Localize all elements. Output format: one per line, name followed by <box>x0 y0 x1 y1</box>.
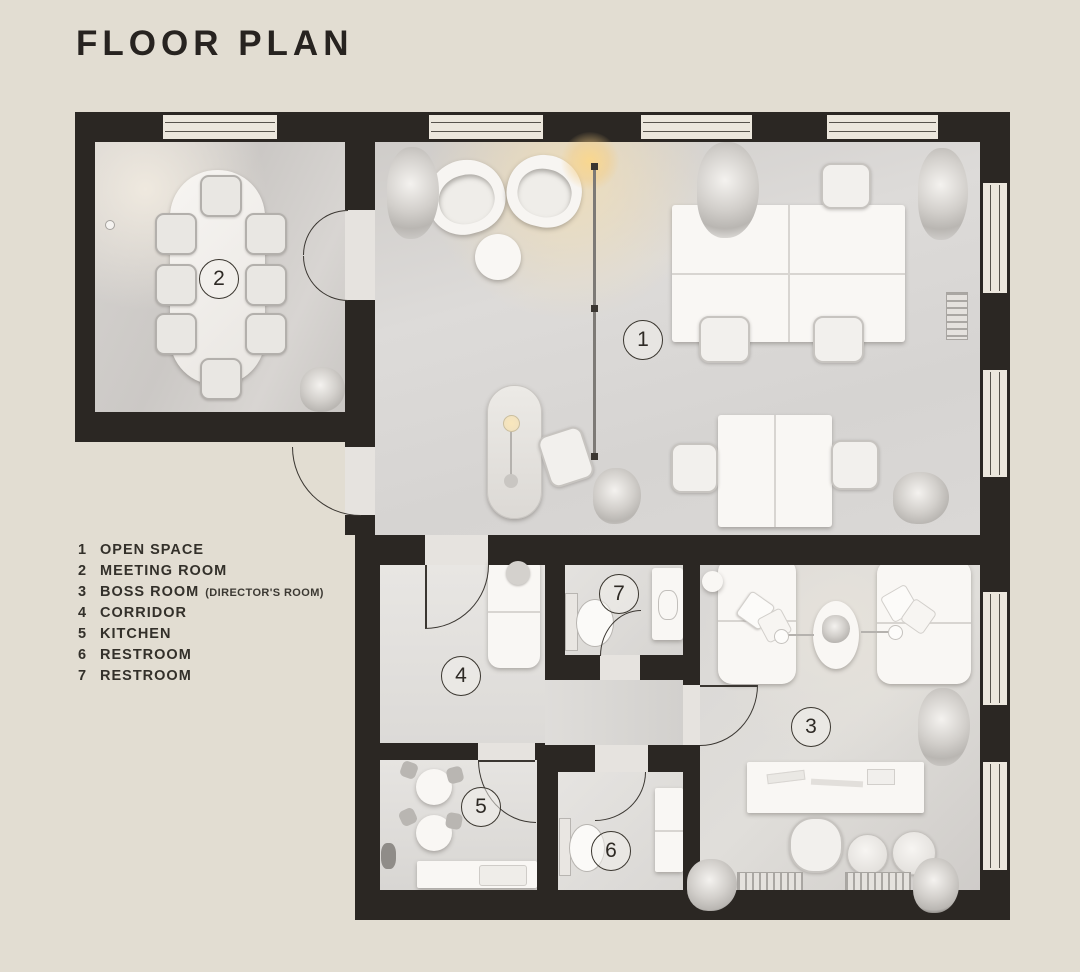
meeting-chair <box>245 213 287 255</box>
room-badge-corridor: 4 <box>441 656 481 696</box>
office-chair <box>699 316 750 363</box>
wall-meeting-bottom <box>75 412 347 442</box>
sofa-pillow <box>506 561 530 585</box>
wall-kitchen-top-left <box>355 743 478 760</box>
room-badge-meeting-room: 2 <box>199 259 239 299</box>
meeting-chair <box>155 313 197 355</box>
wall-boss-divider-upper <box>683 535 700 685</box>
side-table <box>702 571 723 592</box>
doorway <box>478 743 535 760</box>
glass-partition <box>593 165 596 460</box>
floor-plan: 1 2 3 4 5 6 7 <box>75 112 1010 920</box>
desk-laptop <box>867 769 895 785</box>
desk-papers <box>767 770 806 785</box>
kitchen-door-leaf <box>478 760 535 762</box>
meeting-chair <box>200 358 242 400</box>
page-title: FLOOR PLAN <box>76 24 353 64</box>
office-chair <box>813 316 864 363</box>
wall-bottom <box>355 890 1010 920</box>
kitchen-counter <box>417 861 537 888</box>
meeting-chair <box>155 213 197 255</box>
desk-chair <box>789 817 843 873</box>
room-badge-boss-room: 3 <box>791 707 831 747</box>
desk-bank-bottom <box>718 415 832 527</box>
desk-divider <box>774 415 776 527</box>
doorway <box>345 210 375 300</box>
floor-lamp <box>774 629 789 644</box>
partition-node <box>591 453 598 460</box>
desk-keyboard <box>811 779 863 788</box>
partition-node <box>591 305 598 312</box>
desk-lamp <box>503 415 520 432</box>
coat-stand <box>381 843 396 869</box>
radiator <box>946 292 968 340</box>
meeting-chair <box>245 264 287 306</box>
office-chair <box>671 443 718 493</box>
room-number: 6 <box>605 839 617 863</box>
doorway <box>425 535 488 565</box>
corridor-door-leaf <box>425 565 427 628</box>
floor-lamp <box>888 625 903 640</box>
wall-meeting-left <box>75 112 95 442</box>
cabinet-seam <box>655 830 683 832</box>
room-number: 5 <box>475 795 487 819</box>
meeting-chair <box>155 264 197 306</box>
room-number: 2 <box>213 267 225 291</box>
room-number: 7 <box>613 582 625 606</box>
reception-desk <box>487 385 542 519</box>
meeting-chair <box>200 175 242 217</box>
boss-desk <box>747 762 924 813</box>
room-badge-restroom-7: 7 <box>599 574 639 614</box>
office-chair <box>821 163 871 209</box>
office-chair <box>831 440 879 490</box>
doorway <box>600 655 640 680</box>
desk-divider <box>672 273 905 275</box>
wall-passage-bottom-left <box>537 745 595 772</box>
corridor-passage-floor <box>545 680 685 745</box>
kitchen-chair <box>445 812 464 831</box>
window <box>983 370 1007 477</box>
wall-segment <box>345 300 375 447</box>
lounge-chair-seat <box>433 168 500 230</box>
window <box>983 762 1007 870</box>
round-stool <box>847 834 888 875</box>
side-table <box>475 234 521 280</box>
room-badge-kitchen: 5 <box>461 787 501 827</box>
room-number: 3 <box>805 715 817 739</box>
room-number: 4 <box>455 664 467 688</box>
bathroom-sink <box>652 568 683 640</box>
meeting-chair <box>245 313 287 355</box>
window <box>983 592 1007 705</box>
lamp-arm <box>786 634 814 636</box>
wall-lower-top-right <box>488 535 1010 565</box>
kitchen-sink <box>479 865 527 886</box>
window <box>827 115 938 139</box>
partition-node <box>591 163 598 170</box>
lamp-base <box>504 474 518 488</box>
pendant-light-glow <box>561 132 619 190</box>
lamp-arm <box>861 631 889 633</box>
window <box>163 115 277 139</box>
wall-segment <box>345 142 375 210</box>
window <box>983 183 1007 293</box>
bathroom-cabinet <box>655 788 683 872</box>
window <box>429 115 543 139</box>
room-number: 1 <box>637 328 649 352</box>
window <box>641 115 752 139</box>
sofa-seam <box>488 611 540 613</box>
doorway <box>595 745 648 772</box>
room-badge-restroom-6: 6 <box>591 831 631 871</box>
room-badge-open-space: 1 <box>623 320 663 360</box>
wall-segment <box>345 515 375 535</box>
wall-light <box>105 220 115 230</box>
wall-r7-bottom-left <box>545 655 600 680</box>
sink-basin <box>658 590 678 620</box>
lamp-stem <box>510 432 512 478</box>
entrance-door-arc <box>292 447 361 516</box>
page: { "title": "FLOOR PLAN", "legend": { "it… <box>0 0 1080 972</box>
wall-lower-left <box>355 535 380 920</box>
boss-door-leaf <box>700 685 757 687</box>
doorway <box>683 685 700 745</box>
